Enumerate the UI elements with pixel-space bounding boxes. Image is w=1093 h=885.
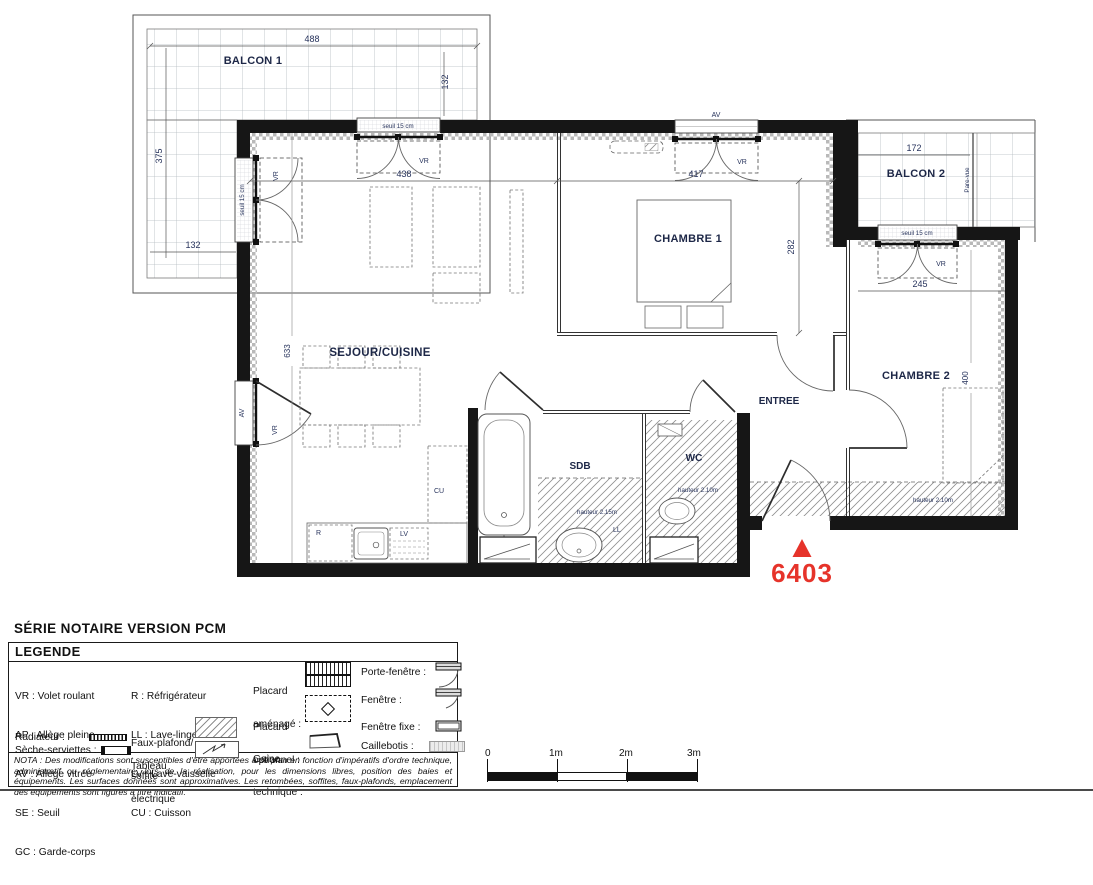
room-label-chambre2: CHAMBRE 2 xyxy=(882,370,950,382)
soffit-hatch-icon xyxy=(195,717,237,738)
av-label: AV xyxy=(712,112,721,119)
scale-tick-label: 1m xyxy=(549,748,563,759)
document-title: SÉRIE NOTAIRE VERSION PCM xyxy=(14,621,226,636)
towel-dryer-icon xyxy=(101,746,131,755)
room-label-sdb: SDB xyxy=(569,461,590,472)
av-label: AV xyxy=(239,408,246,417)
legend-radiateur-label: Radiateur : xyxy=(15,731,65,744)
kitchen: R LV CU xyxy=(307,446,467,563)
parevue-label: Pare-vue xyxy=(964,167,971,193)
cooktop-label: CU xyxy=(434,488,444,495)
fridge-label: R xyxy=(316,530,321,537)
optional-closet-icon xyxy=(305,695,351,722)
seuil-label: seuil 15 cm xyxy=(239,184,246,215)
floor-plan-page: { "title": "SÉRIE NOTAIRE VERSION PCM", … xyxy=(0,0,1093,800)
legend-caillebotis: Caillebotis : xyxy=(361,740,414,753)
dining-table xyxy=(300,368,420,425)
dim-sejour-depth: 633 xyxy=(283,344,292,358)
scale-tick-label: 3m xyxy=(687,748,701,759)
seuil-label: seuil 15 cm xyxy=(382,123,413,130)
legend-item: Tableau xyxy=(131,761,175,772)
room-label-entree: ENTREE xyxy=(759,396,800,407)
scale-tick-label: 0 xyxy=(485,748,491,759)
dishwasher-label: LV xyxy=(400,531,408,538)
room-label-balcon1: BALCON 1 xyxy=(224,55,283,67)
cooktop-outline xyxy=(428,446,467,523)
hauteur-entree-label: hauteur 2.10m xyxy=(913,497,953,504)
legend-fenetre: Fenêtre : xyxy=(361,694,402,707)
sofa xyxy=(370,187,412,267)
scale-tick-label: 2m xyxy=(619,748,633,759)
legend-item: R : Réfrigérateur xyxy=(131,690,216,703)
legend-item: GC : Garde-corps xyxy=(15,846,95,859)
dim-chambre2-bay: 245 xyxy=(912,279,927,289)
bed xyxy=(637,200,731,302)
page-bottom-rule xyxy=(0,789,1093,791)
legend-item: SE : Seuil xyxy=(15,807,95,820)
floor-plan-drawing: 488 132 375 132 BALCON 1 Pare-vue 172 BA… xyxy=(0,0,1093,618)
legend-gaine: Gaine technique : xyxy=(253,732,303,820)
window-chambre1: AV VR xyxy=(672,112,761,181)
dim-chambre1-depth: 282 xyxy=(786,239,796,254)
dim-balcon1-width: 488 xyxy=(304,34,319,44)
dim-chambre1-width: 417 xyxy=(688,169,703,179)
bedroom2 xyxy=(943,388,1003,483)
vr-label: VR xyxy=(419,158,429,165)
vr-label: VR xyxy=(273,171,280,181)
north-triangle-icon xyxy=(793,539,812,557)
legend-seche-label: Sèche-serviettes : xyxy=(15,744,97,757)
hauteur-wc-label: hauteur 2.10m xyxy=(678,487,718,494)
dim-balcon2-width: 172 xyxy=(906,143,921,153)
radiator-icon xyxy=(89,734,127,741)
legend-item: Placard xyxy=(253,686,301,697)
fixed-window-icon xyxy=(433,720,463,737)
fitted-closet-icon xyxy=(305,662,351,687)
toilet xyxy=(659,498,695,524)
grating-icon xyxy=(429,741,465,752)
dim-balcon1-side: 132 xyxy=(440,74,450,89)
optional-closet xyxy=(943,388,1003,483)
room-label-balcon2: BALCON 2 xyxy=(887,168,946,180)
vr-label: VR xyxy=(737,159,747,166)
lot-number: 6403 xyxy=(771,558,833,588)
legend-body: VR : Volet roulant AP : Allège pleine AV… xyxy=(9,662,457,752)
room-label-sejour: SEJOUR/CUISINE xyxy=(329,347,430,359)
legend-fenetre-fixe: Fenêtre fixe : xyxy=(361,721,420,734)
legend-porte-fenetre: Porte-fenêtre : xyxy=(361,666,426,679)
legend-box: LEGENDE VR : Volet roulant AP : Allège p… xyxy=(8,642,458,787)
vr-label: VR xyxy=(936,261,946,268)
legend-item: AV : Allège vitrée xyxy=(15,768,95,781)
legend-item: VR : Volet roulant xyxy=(15,690,95,703)
balcony-1: 488 132 375 132 BALCON 1 xyxy=(133,15,490,293)
dim-sejour-bay: 438 xyxy=(396,169,411,179)
electrical-panel-icon xyxy=(195,741,239,761)
legend-abbreviations: VR : Volet roulant AP : Allège pleine AV… xyxy=(15,664,95,885)
legend-header: LEGENDE xyxy=(9,643,457,662)
legend-tableau: Tableau électrique xyxy=(131,739,175,827)
vr-label: VR xyxy=(272,425,279,435)
lot-marker: 6403 xyxy=(771,539,833,588)
balcony-2: Pare-vue 172 BALCON 2 xyxy=(846,120,1035,242)
dim-chambre2-depth: 400 xyxy=(961,371,970,385)
hauteur-sdb-label: hauteur 2.15m xyxy=(577,509,617,516)
seuil-label: seuil 15 cm xyxy=(901,230,932,237)
room-label-wc: WC xyxy=(686,453,703,464)
technical-duct-icon xyxy=(309,732,341,753)
dim-balcon1-bottom: 132 xyxy=(185,240,200,250)
balcony2-grating xyxy=(858,133,1035,227)
scale-bar: 0 1m 2m 3m xyxy=(487,748,699,786)
legend-item: Gaine xyxy=(253,754,303,765)
dim-balcon1-left: 375 xyxy=(154,148,164,163)
hatched-zones xyxy=(538,420,1005,563)
room-label-chambre1: CHAMBRE 1 xyxy=(654,233,722,245)
washer-label: LL xyxy=(613,527,621,534)
window-icon xyxy=(433,688,463,715)
